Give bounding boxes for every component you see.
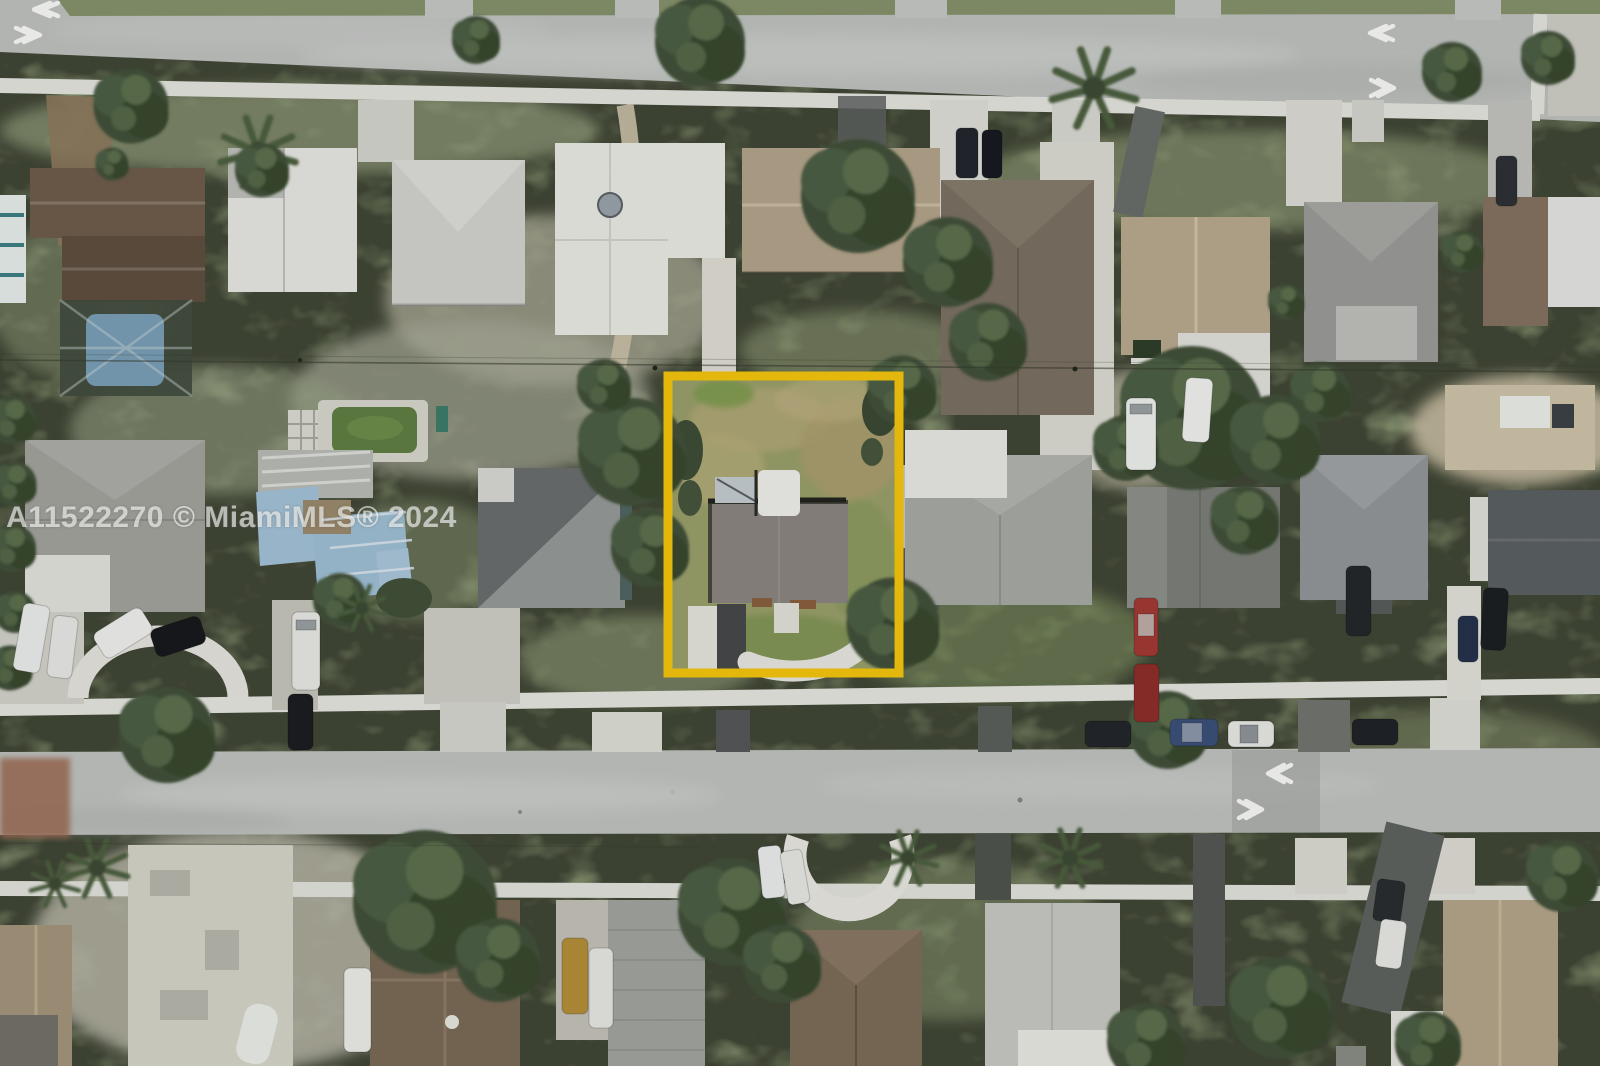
aerial-scene <box>0 0 1600 1066</box>
photo-grain <box>0 0 1600 1066</box>
aerial-photo: A11522270 © MiamiMLS® 2024 <box>0 0 1600 1066</box>
